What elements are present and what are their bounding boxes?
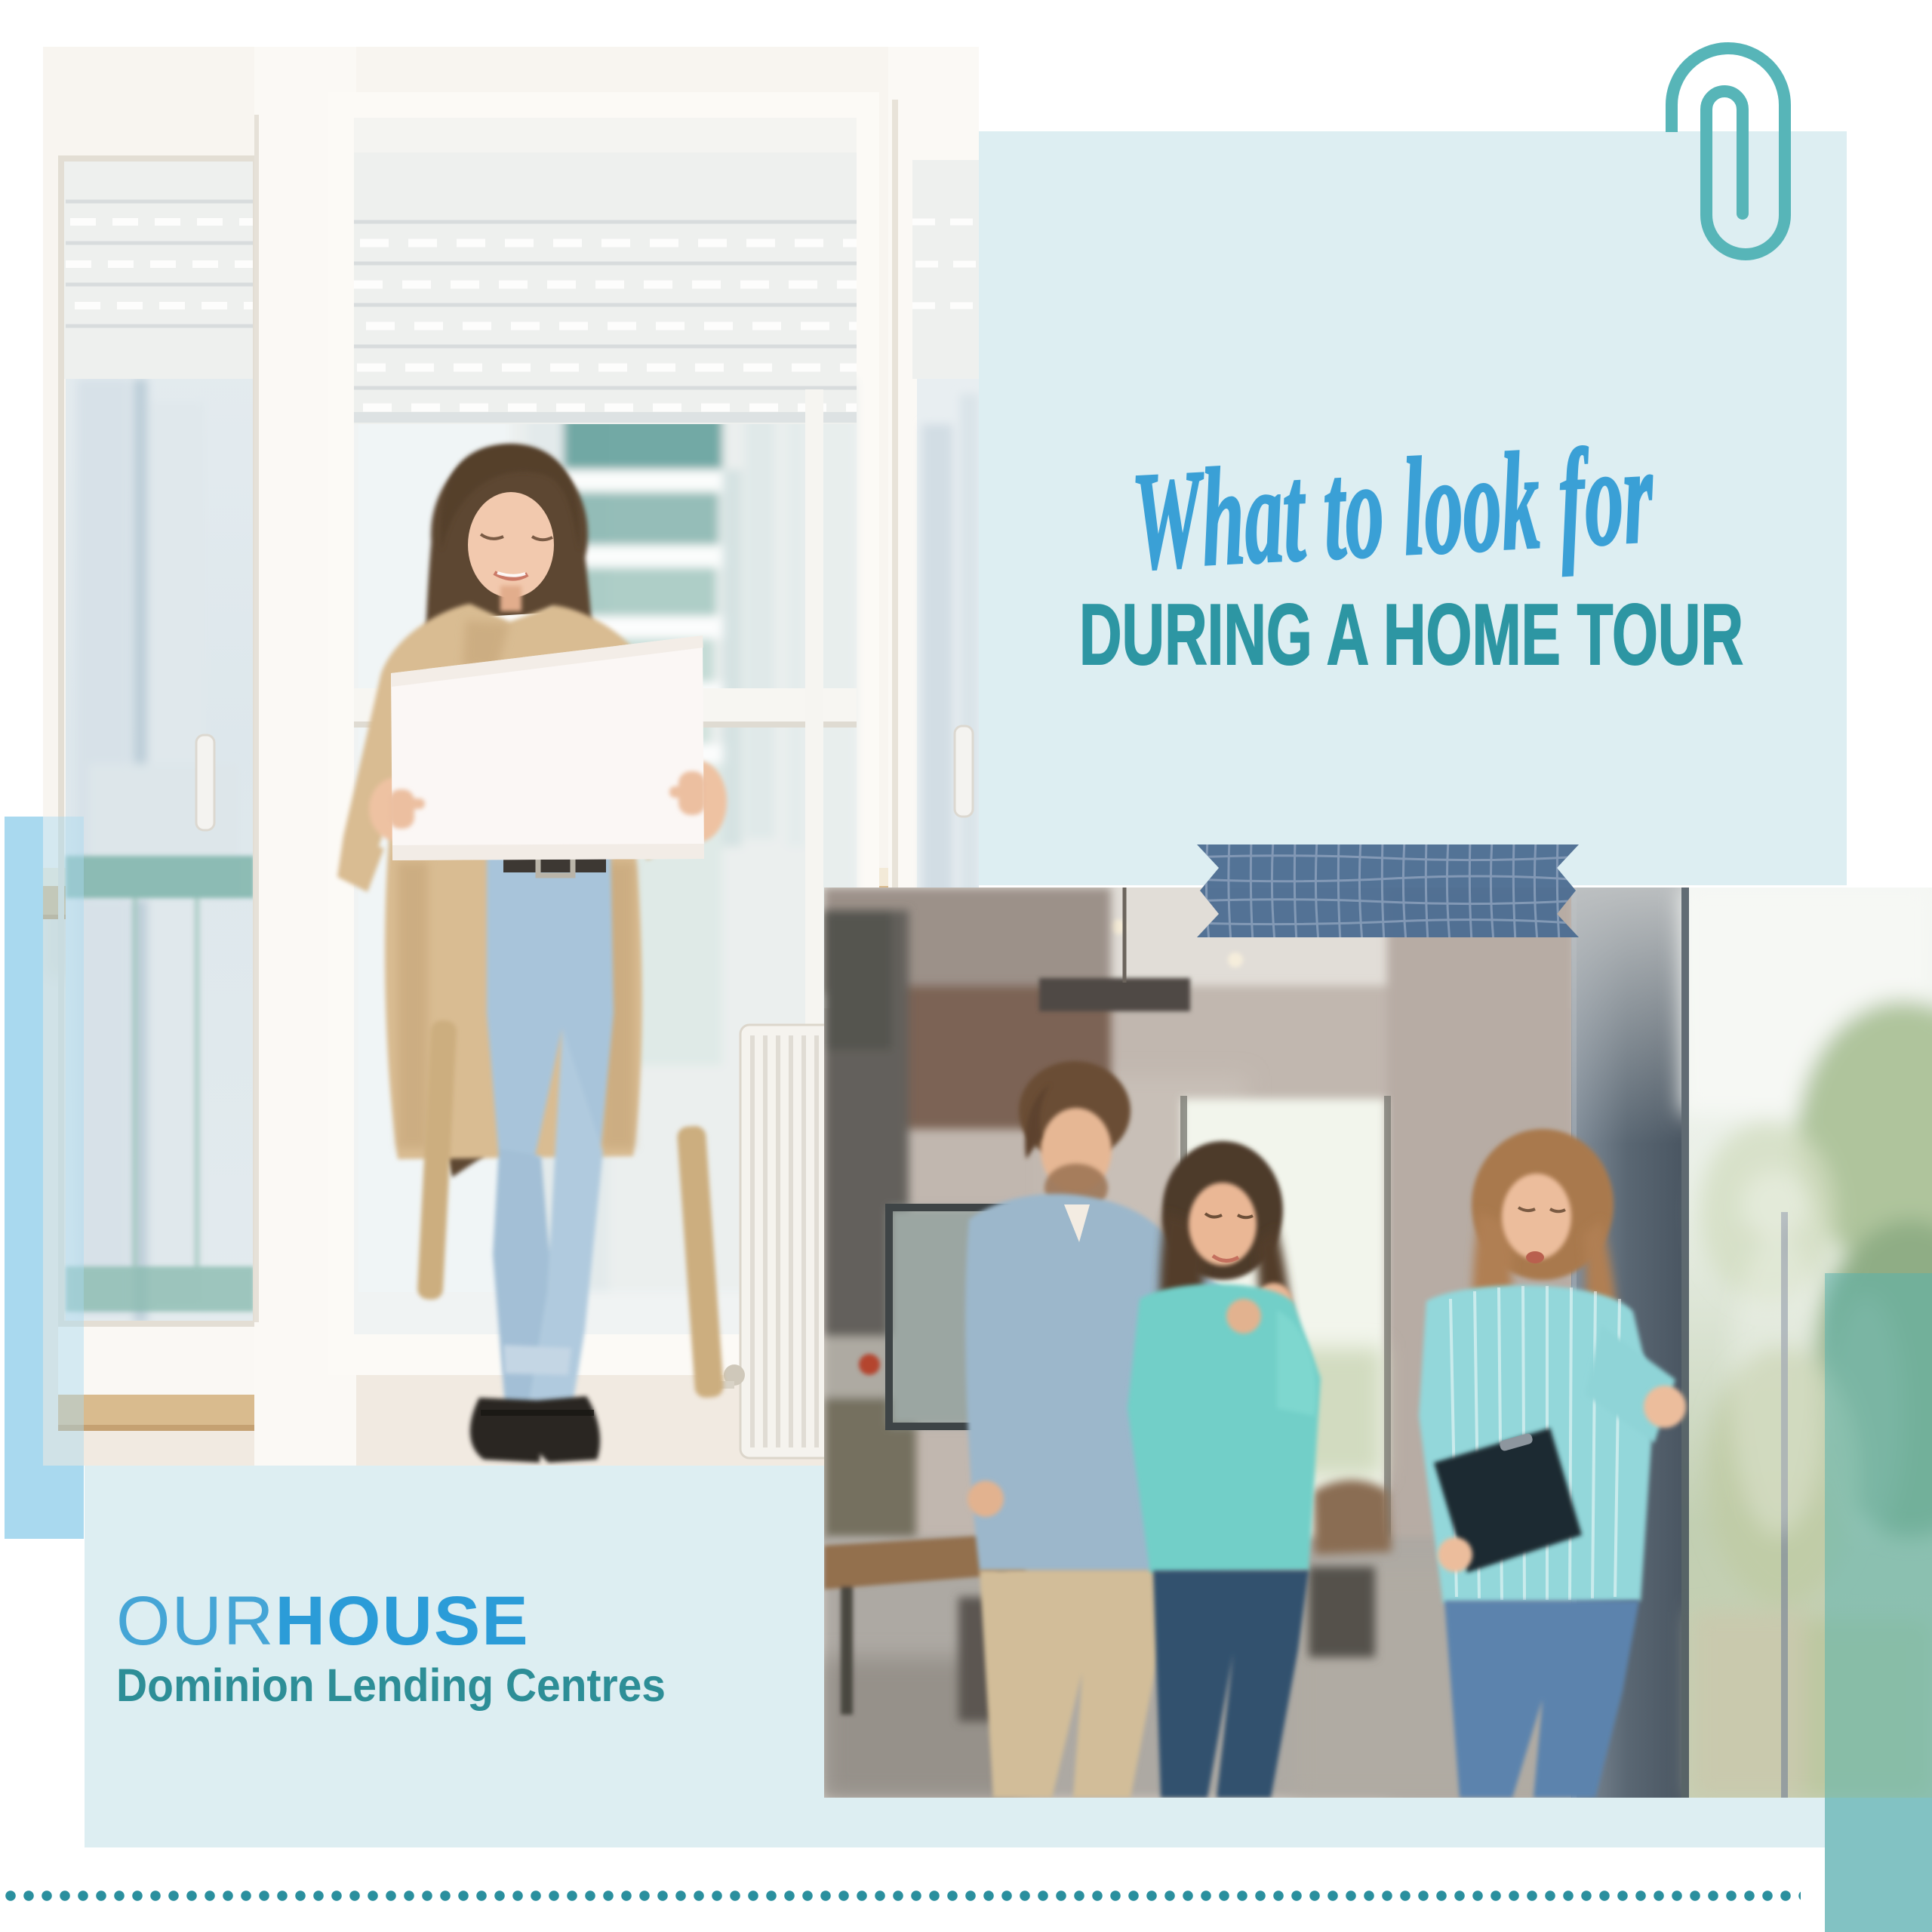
svg-text:DURING A HOME TOUR: DURING A HOME TOUR <box>1079 587 1743 683</box>
svg-text:Dominion Lending Centres: Dominion Lending Centres <box>116 1660 666 1711</box>
svg-text:What to look for: What to look for <box>1129 417 1658 599</box>
